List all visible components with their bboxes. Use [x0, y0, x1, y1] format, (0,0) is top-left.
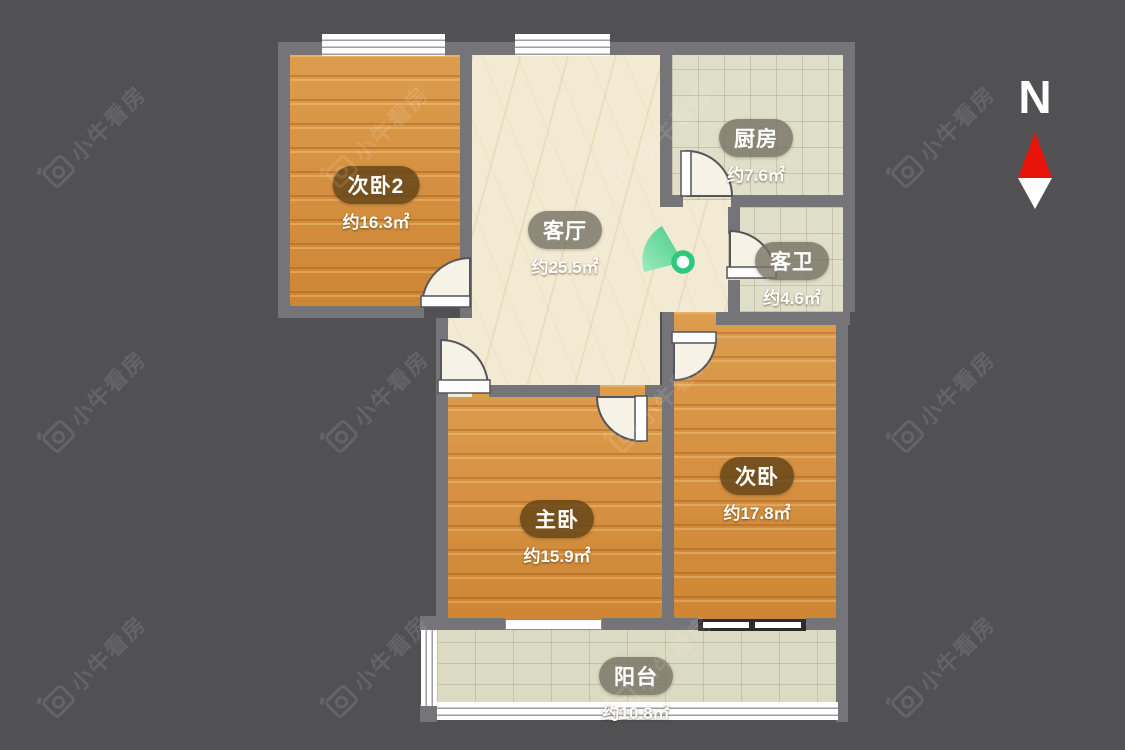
room-name-master: 主卧 — [520, 500, 594, 538]
wall-living-bottom-mid — [489, 385, 600, 397]
room-label-bedroom: 次卧 约17.8㎡ — [720, 457, 794, 524]
watermark: 小牛看房 — [886, 607, 1001, 722]
room-area-bathroom: 约4.6㎡ — [755, 284, 829, 309]
watermark: 小牛看房 — [886, 342, 1001, 457]
watermark: 小牛看房 — [37, 77, 152, 192]
wall-mid-vertical — [662, 312, 674, 630]
floor-living-corridor — [448, 318, 472, 397]
room-area-bedroom: 约17.8㎡ — [720, 499, 794, 524]
room-area-bedroom2: 约16.3㎡ — [333, 208, 420, 233]
watermark: 小牛看房 — [37, 342, 152, 457]
room-area-balcony: 约10.8㎡ — [599, 699, 673, 724]
xiaoniu-logo-icon — [40, 153, 77, 190]
compass-arrow-icon — [1017, 132, 1053, 210]
watermark: 小牛看房 — [320, 607, 435, 722]
wall-bathroom-left-lower — [728, 280, 740, 312]
wall-right-outer-lower — [836, 312, 848, 722]
room-name-living: 客厅 — [528, 211, 602, 249]
wall-balcony-left-bottom — [420, 704, 437, 722]
room-name-bedroom: 次卧 — [720, 457, 794, 495]
room-name-bathroom: 客卫 — [755, 242, 829, 280]
xiaoniu-logo-icon — [889, 683, 926, 720]
window-bedroom2-top — [322, 34, 445, 56]
wall-kitchen-left — [660, 55, 672, 197]
compass-north-label: N — [1007, 74, 1063, 120]
room-name-balcony: 阳台 — [599, 657, 673, 695]
window-bedroom-bottom — [698, 619, 806, 631]
room-area-living: 约25.5㎡ — [528, 253, 602, 278]
floorplan-canvas: 次卧2 约16.3㎡ 客厅 约25.5㎡ 厨房 约7.6㎡ 客卫 约4.6㎡ 主… — [0, 0, 1125, 750]
compass: N — [1007, 74, 1063, 215]
watermark: 小牛看房 — [37, 607, 152, 722]
wall-left-outer — [278, 42, 290, 318]
room-label-bathroom: 客卫 约4.6㎡ — [755, 242, 829, 309]
floor-living-entry — [660, 195, 734, 312]
wall-balcony-left-top — [420, 616, 438, 630]
wall-bedroom2-bottom — [278, 306, 424, 318]
window-living-top — [515, 34, 610, 56]
wall-bedroom2-right — [460, 42, 472, 318]
wall-right-outer-upper — [843, 42, 855, 312]
wall-bottom-left — [436, 618, 505, 630]
room-label-kitchen: 厨房 约7.6㎡ — [719, 119, 793, 186]
wall-master-left — [436, 318, 448, 622]
watermark: 小牛看房 — [320, 342, 435, 457]
xiaoniu-logo-icon — [889, 153, 926, 190]
wall-kitchen-bottom-right — [731, 195, 843, 207]
wall-kitchen-bottom-left — [660, 195, 683, 207]
wall-bottom-mid — [602, 618, 700, 630]
room-label-balcony: 阳台 约10.8㎡ — [599, 657, 673, 724]
wall-bottom-right — [806, 618, 836, 630]
window-master-balcony-slider — [505, 619, 602, 630]
xiaoniu-logo-icon — [323, 418, 360, 455]
wall-bathroom-left-upper — [728, 207, 740, 234]
xiaoniu-logo-icon — [323, 683, 360, 720]
xiaoniu-logo-icon — [889, 418, 926, 455]
room-label-bedroom2: 次卧2 约16.3㎡ — [333, 166, 420, 233]
room-area-kitchen: 约7.6㎡ — [719, 161, 793, 186]
xiaoniu-logo-icon — [40, 683, 77, 720]
room-label-master: 主卧 约15.9㎡ — [520, 500, 594, 567]
room-name-bedroom2: 次卧2 — [333, 166, 420, 204]
xiaoniu-logo-icon — [40, 418, 77, 455]
room-name-kitchen: 厨房 — [719, 119, 793, 157]
window-balcony-left — [421, 630, 437, 706]
room-area-master: 约15.9㎡ — [520, 542, 594, 567]
wall-bedroom-top — [716, 312, 850, 325]
room-label-living: 客厅 约25.5㎡ — [528, 211, 602, 278]
watermark: 小牛看房 — [886, 77, 1001, 192]
